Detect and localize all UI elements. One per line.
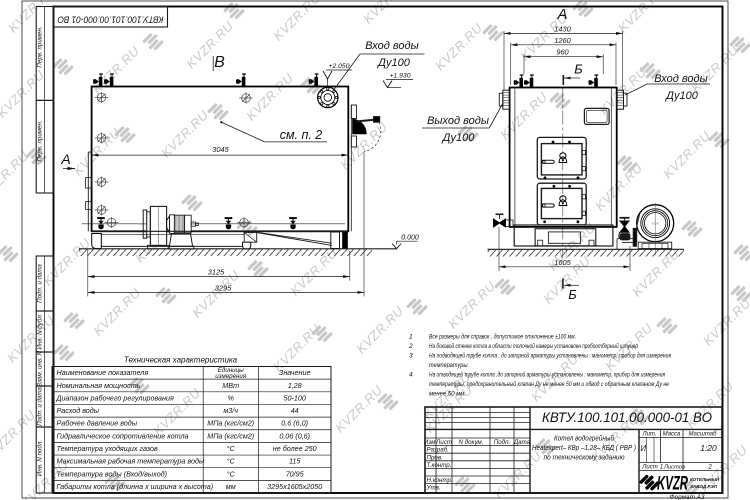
svg-text:KVZR: KVZR xyxy=(657,474,688,495)
svg-text:0,6 (6,0): 0,6 (6,0) xyxy=(281,419,308,428)
svg-text:Ду100: Ду100 xyxy=(441,132,476,144)
svg-text:Все размеры для справок , допу: Все размеры для справок , допустимое отк… xyxy=(429,333,576,341)
svg-text:Формат А3: Формат А3 xyxy=(670,494,705,500)
svg-text:1: 1 xyxy=(409,334,413,341)
svg-text:+2.050: +2.050 xyxy=(329,63,350,70)
svg-text:мм: мм xyxy=(226,482,236,491)
svg-text:Температура воды (Вход/выход): Температура воды (Вход/выход) xyxy=(57,469,168,478)
svg-text:°С: °С xyxy=(227,444,236,453)
svg-text:%: % xyxy=(227,393,234,402)
svg-text:Масса: Масса xyxy=(663,432,681,438)
svg-text:не более 250: не более 250 xyxy=(273,444,317,453)
svg-text:Масштаб: Масштаб xyxy=(688,432,717,438)
svg-text:0,06 (0,6): 0,06 (0,6) xyxy=(279,431,310,440)
svg-text:3045: 3045 xyxy=(212,145,229,154)
svg-text:КВТУ.100.101.00.000-01 ВО: КВТУ.100.101.00.000-01 ВО xyxy=(542,409,712,425)
svg-text:И: И xyxy=(640,444,646,453)
svg-text:1605: 1605 xyxy=(554,258,571,267)
svg-text:На боковой стенке котла в обла: На боковой стенке котла в области топочн… xyxy=(429,342,638,350)
svg-text:Инв. N подл.: Инв. N подл. xyxy=(37,440,44,476)
svg-text:70/95: 70/95 xyxy=(286,469,305,478)
svg-text:Вход воды: Вход воды xyxy=(654,73,707,85)
svg-text:Расход воды: Расход воды xyxy=(57,406,100,415)
svg-text:Номинальная мощность: Номинальная мощность xyxy=(57,381,141,390)
svg-text:На отводящей трубе котла ,до з: На отводящей трубе котла ,до запорной ар… xyxy=(429,371,665,379)
svg-text:1,28: 1,28 xyxy=(288,381,302,390)
svg-text:измерения: измерения xyxy=(215,373,247,380)
svg-text:Рабочее давление воды: Рабочее давление воды xyxy=(57,419,138,428)
svg-text:4: 4 xyxy=(409,372,413,379)
svg-text:+1.930: +1.930 xyxy=(390,72,411,79)
svg-text:Инв. N дубл.: Инв. N дубл. xyxy=(37,314,44,350)
svg-text:Лист: Лист xyxy=(435,439,452,446)
svg-text:Перв. примен.: Перв. примен. xyxy=(37,26,44,67)
svg-text:Габариты котла (длинна х ширин: Габариты котла (длинна х ширина х высота… xyxy=(57,482,214,491)
svg-text:Пров.: Пров. xyxy=(427,454,443,461)
svg-text:менее 50 мм.: менее 50 мм. xyxy=(429,391,466,398)
svg-text:Дата: Дата xyxy=(513,439,531,446)
svg-text:2: 2 xyxy=(408,343,413,350)
svg-text:3125: 3125 xyxy=(208,268,225,277)
svg-text:44: 44 xyxy=(291,406,299,415)
svg-text:Котел водогрейный: Котел водогрейный xyxy=(554,434,615,443)
svg-text:Взам. инв. N: Взам. инв. N xyxy=(37,350,44,387)
svg-text:МПа (кгс/см2): МПа (кгс/см2) xyxy=(207,431,254,440)
svg-text:N докум.: N докум. xyxy=(458,439,483,446)
svg-text:температуры, предохранительный: температуры, предохранительный клапан Ду… xyxy=(429,380,669,388)
svg-text:Листов: Листов xyxy=(663,465,685,471)
svg-text:°С: °С xyxy=(227,469,236,478)
svg-text:Гидравлическое сопротивление к: Гидравлическое сопротивление котла xyxy=(57,431,189,440)
svg-text:Наименование показателя: Наименование показателя xyxy=(57,368,149,377)
svg-text:Разраб.: Разраб. xyxy=(427,447,449,454)
svg-text:Лит.: Лит. xyxy=(641,432,656,438)
svg-text:МПа (кгс/см2): МПа (кгс/см2) xyxy=(207,419,254,428)
svg-text:50-100: 50-100 xyxy=(284,393,306,402)
svg-text:960: 960 xyxy=(556,48,569,57)
svg-text:Подп.: Подп. xyxy=(494,439,510,446)
svg-text:Подп. и дата: Подп. и дата xyxy=(37,264,44,303)
svg-text:3: 3 xyxy=(409,353,413,360)
svg-text:ЗАВОД РЭП: ЗАВОД РЭП xyxy=(690,484,718,489)
svg-text:Н.контр.: Н.контр. xyxy=(427,477,453,484)
svg-text:Значение: Значение xyxy=(279,368,311,377)
svg-text:КВЗР: КВЗР xyxy=(651,222,659,226)
svg-text:Утв.: Утв. xyxy=(426,485,441,492)
svg-text:В: В xyxy=(214,54,225,71)
svg-text:1: 1 xyxy=(660,465,663,471)
svg-text:3295х1605х2050: 3295х1605х2050 xyxy=(267,482,322,491)
svg-text:°С: °С xyxy=(227,457,236,466)
svg-text:Heatexpert– КВр –1,28– КБД ( Р: Heatexpert– КВр –1,28– КБД ( РВР ) xyxy=(532,443,636,452)
svg-text:Б: Б xyxy=(568,287,577,302)
svg-text:Выход воды: Выход воды xyxy=(427,115,489,127)
svg-text:1260: 1260 xyxy=(554,36,571,45)
svg-text:1430: 1430 xyxy=(554,24,571,33)
svg-text:Подп. и дата: Подп. и дата xyxy=(37,387,44,426)
svg-text:Б: Б xyxy=(574,62,583,77)
svg-text:КВТУ.100.101.00.000-01 ВО: КВТУ.100.101.00.000-01 ВО xyxy=(58,15,164,25)
svg-text:1:20: 1:20 xyxy=(700,443,717,453)
svg-text:Лист: Лист xyxy=(641,465,657,471)
svg-text:КОТЕЛЬНЫЙ: КОТЕЛЬНЫЙ xyxy=(690,475,720,482)
svg-text:Вход воды: Вход воды xyxy=(365,40,418,52)
svg-text:Максимальная рабочая температу: Максимальная рабочая температура воды xyxy=(57,457,205,466)
svg-text:температуры.: температуры. xyxy=(429,362,469,369)
svg-text:На подводящей трубе котла ,: На подводящей трубе котла , до запорной … xyxy=(429,352,671,360)
svg-text:0.000: 0.000 xyxy=(401,235,419,242)
svg-text:Перв. примен.: Перв. примен. xyxy=(37,120,44,161)
svg-text:МВт: МВт xyxy=(222,381,239,390)
svg-text:м3/ч: м3/ч xyxy=(223,406,238,415)
svg-text:Т.контр.: Т.контр. xyxy=(427,462,452,469)
svg-text:Температура уходящих газов: Температура уходящих газов xyxy=(57,444,159,453)
svg-text:Ду100: Ду100 xyxy=(664,90,699,102)
svg-text:Ду100: Ду100 xyxy=(376,57,411,69)
svg-text:по техническому заданию: по техническому заданию xyxy=(544,453,625,462)
svg-text:2: 2 xyxy=(707,465,712,471)
svg-text:А: А xyxy=(60,151,70,167)
svg-text:115: 115 xyxy=(289,457,301,466)
svg-text:Диапазон рабочего регулировани: Диапазон рабочего регулирования xyxy=(56,393,175,402)
svg-text:3295: 3295 xyxy=(215,283,232,292)
svg-text:Техническая характеристика: Техническая характеристика xyxy=(124,356,238,365)
svg-text:А: А xyxy=(556,6,567,23)
svg-text:см. п. 2: см. п. 2 xyxy=(280,128,323,142)
